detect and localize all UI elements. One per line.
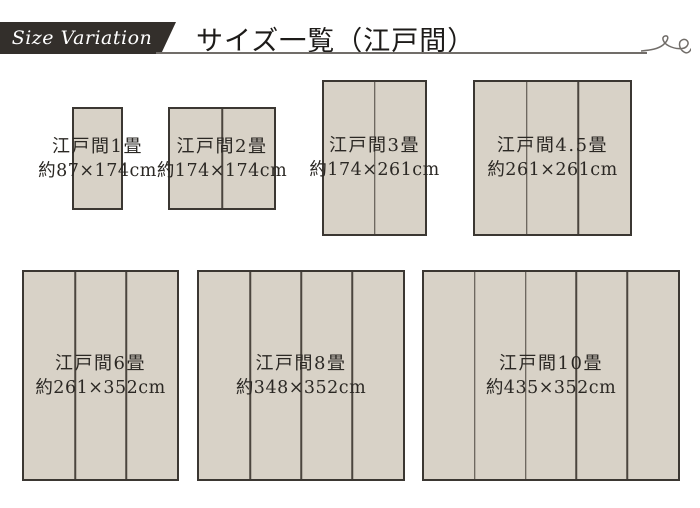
mat-size-name: 江戸間8畳 bbox=[236, 351, 366, 376]
mat-edoma-1jo: 江戸間1畳 約87×174cm bbox=[72, 107, 123, 210]
mat-size-dimensions: 約174×261cm bbox=[309, 158, 439, 183]
mat-label: 江戸間4.5畳 約261×261cm bbox=[487, 133, 617, 183]
mat-size-name: 江戸間6畳 bbox=[35, 351, 165, 376]
ribbon-label: Size Variation bbox=[12, 27, 153, 49]
mat-edoma-6jo: 江戸間6畳 約261×352cm bbox=[22, 270, 179, 481]
mat-label: 江戸間6畳 約261×352cm bbox=[35, 351, 165, 401]
mat-panel-divider bbox=[474, 272, 476, 479]
mat-label: 江戸間2畳 約174×174cm bbox=[157, 134, 287, 184]
mat-size-name: 江戸間3畳 bbox=[309, 133, 439, 158]
mat-size-dimensions: 約435×352cm bbox=[486, 376, 616, 401]
mat-edoma-3jo: 江戸間3畳 約174×261cm bbox=[322, 80, 427, 236]
size-variation-chart: Size Variation サイズ一覧（江戸間） 江戸間1畳 約87×174c… bbox=[0, 0, 700, 508]
mat-label: 江戸間1畳 約87×174cm bbox=[38, 134, 157, 184]
mat-label: 江戸間3畳 約174×261cm bbox=[309, 133, 439, 183]
mat-edoma-8jo: 江戸間8畳 約348×352cm bbox=[197, 270, 405, 481]
mat-label: 江戸間8畳 約348×352cm bbox=[236, 351, 366, 401]
header-divider-line bbox=[156, 52, 647, 54]
mat-panel-divider bbox=[626, 272, 628, 479]
mat-edoma-2jo: 江戸間2畳 約174×174cm bbox=[168, 107, 276, 210]
mat-size-dimensions: 約348×352cm bbox=[236, 376, 366, 401]
mat-size-dimensions: 約174×174cm bbox=[157, 159, 287, 184]
mat-edoma-10jo: 江戸間10畳 約435×352cm bbox=[422, 270, 680, 481]
mat-size-name: 江戸間10畳 bbox=[486, 351, 616, 376]
mat-size-dimensions: 約261×261cm bbox=[487, 158, 617, 183]
ribbon-banner: Size Variation bbox=[0, 22, 176, 54]
mat-size-dimensions: 約87×174cm bbox=[38, 159, 157, 184]
mat-edoma-4-5jo: 江戸間4.5畳 約261×261cm bbox=[473, 80, 632, 236]
mat-label: 江戸間10畳 約435×352cm bbox=[486, 351, 616, 401]
mat-size-dimensions: 約261×352cm bbox=[35, 376, 165, 401]
calligraphic-flourish-icon bbox=[641, 33, 691, 65]
mat-size-name: 江戸間2畳 bbox=[157, 134, 287, 159]
mat-size-name: 江戸間4.5畳 bbox=[487, 133, 617, 158]
mat-size-name: 江戸間1畳 bbox=[38, 134, 157, 159]
